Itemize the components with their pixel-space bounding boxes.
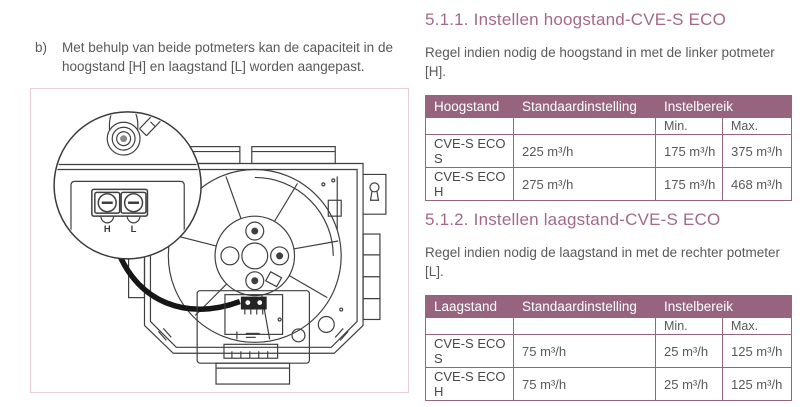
min-cell: 25 m³/h (656, 335, 723, 368)
max-label: Max. (723, 118, 792, 135)
empty-cell (426, 118, 514, 135)
laagstand-table: Laagstand Standaardinstelling Instelbere… (425, 295, 792, 401)
potmeter-high-label: H (104, 223, 111, 234)
table-row: CVE-S ECO H 75 m³/h 25 m³/h 125 m³/h (426, 368, 792, 401)
max-cell: 375 m³/h (723, 135, 792, 168)
intro-text: Met behulp van beide potmeters kan de ca… (62, 39, 407, 77)
col-header-standaard: Standaardinstelling (514, 96, 656, 118)
col-header-hoogstand: Hoogstand (426, 96, 514, 118)
max-label: Max. (723, 318, 792, 335)
model-cell: CVE-S ECO S (426, 135, 514, 168)
manual-page: b) Met behulp van beide potmeters kan de… (0, 0, 800, 407)
col-header-standaard: Standaardinstelling (514, 296, 656, 318)
hoogstand-table: Hoogstand Standaardinstelling Instelbere… (425, 95, 792, 201)
min-cell: 175 m³/h (656, 168, 723, 201)
col-header-instelbereik: Instelbereik (656, 96, 792, 118)
unit-diagram: H L (30, 88, 409, 393)
cve-unit-drawing: H L (31, 89, 408, 392)
potmeter-callout: H L (51, 102, 204, 259)
potmeter-low-label: L (131, 223, 137, 234)
table-subheader-row: Min. Max. (426, 118, 792, 135)
standard-cell: 225 m³/h (514, 135, 656, 168)
model-cell: CVE-S ECO H (426, 168, 514, 201)
keyhole-mount (363, 174, 386, 214)
model-cell: CVE-S ECO H (426, 368, 514, 401)
max-cell: 125 m³/h (723, 335, 792, 368)
col-header-instelbereik: Instelbereik (656, 296, 792, 318)
empty-cell (514, 118, 656, 135)
max-cell: 468 m³/h (723, 168, 792, 201)
list-marker: b) (35, 39, 62, 77)
section-heading-511: 5.1.1. Instellen hoogstand-CVE-S ECO (425, 10, 791, 30)
table-subheader-row: Min. Max. (426, 318, 792, 335)
min-label: Min. (656, 318, 723, 335)
motor-hub (215, 216, 294, 295)
intro-list-item: b) Met behulp van beide potmeters kan de… (35, 39, 407, 77)
table-header-row: Hoogstand Standaardinstelling Instelbere… (426, 96, 792, 118)
standard-cell: 75 m³/h (514, 335, 656, 368)
standard-cell: 75 m³/h (514, 368, 656, 401)
empty-cell (514, 318, 656, 335)
col-header-laagstand: Laagstand (426, 296, 514, 318)
table-row: CVE-S ECO H 275 m³/h 175 m³/h 468 m³/h (426, 168, 792, 201)
section-heading-512: 5.1.2. Instellen laagstand-CVE-S ECO (425, 210, 791, 230)
table-row: CVE-S ECO S 75 m³/h 25 m³/h 125 m³/h (426, 335, 792, 368)
table-row: CVE-S ECO S 225 m³/h 175 m³/h 375 m³/h (426, 135, 792, 168)
min-label: Min. (656, 118, 723, 135)
max-cell: 125 m³/h (723, 368, 792, 401)
table-header-row: Laagstand Standaardinstelling Instelbere… (426, 296, 792, 318)
standard-cell: 275 m³/h (514, 168, 656, 201)
model-cell: CVE-S ECO S (426, 335, 514, 368)
min-cell: 175 m³/h (656, 135, 723, 168)
control-box (197, 291, 309, 364)
min-cell: 25 m³/h (656, 368, 723, 401)
empty-cell (426, 318, 514, 335)
section-body-512: Regel indien nodig de laagstand in met d… (425, 243, 785, 281)
section-body-511: Regel indien nodig de hoogstand in met d… (425, 43, 785, 81)
